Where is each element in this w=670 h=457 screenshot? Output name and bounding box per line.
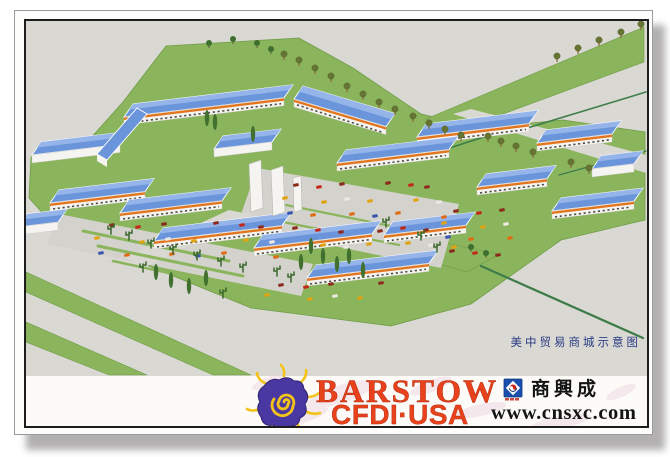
cfdi-usa-wordmark: CFDI·USA [331, 399, 469, 426]
sxc-diamond-icon [504, 379, 522, 401]
scan-frame: 美中贸易商城示意图 [14, 10, 653, 435]
sxc-url: www.cnsxc.com [491, 402, 637, 424]
postcard-artwork: 美中贸易商城示意图 [24, 19, 649, 428]
barstow-logo: BARSTOW CFDI·USA [247, 365, 498, 426]
caption-label: 美中贸易商城示意图 [511, 335, 642, 349]
sxc-wordmark: 商興成 [531, 377, 600, 400]
aerial-site-plan: 美中贸易商城示意图 [26, 21, 647, 376]
scanned-postcard-page: 美中贸易商城示意图 [0, 0, 670, 457]
trade-city-rendering: 美中贸易商城示意图 [26, 21, 647, 426]
sxc-logo-subtext-marks [505, 398, 519, 401]
